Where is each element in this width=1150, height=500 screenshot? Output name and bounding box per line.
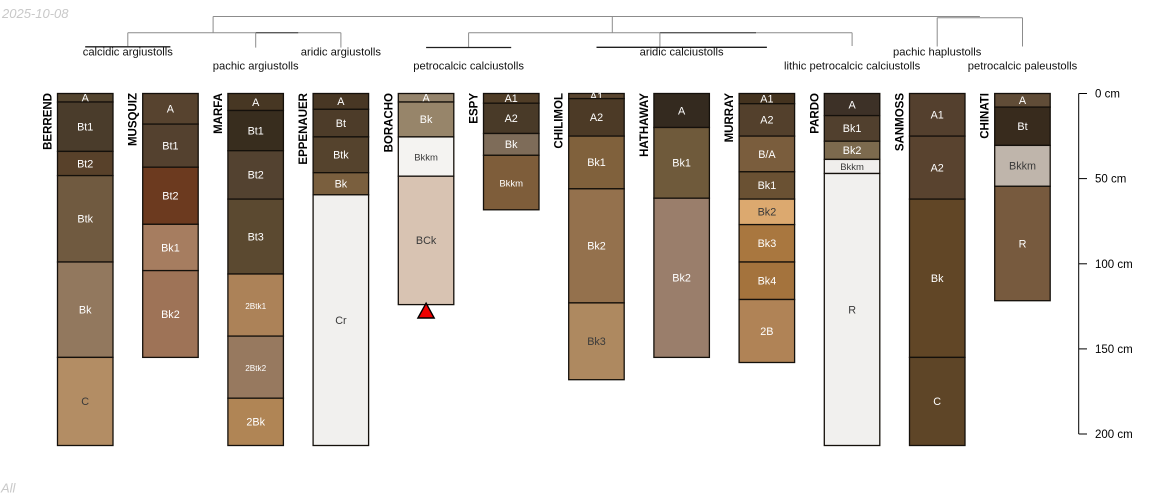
svg-text:A: A [1019,95,1027,107]
svg-text:PARDO: PARDO [809,93,821,134]
svg-text:Bk: Bk [420,114,433,126]
svg-text:Bt: Bt [1017,121,1027,133]
svg-text:Bk1: Bk1 [843,123,862,135]
svg-text:Bt2: Bt2 [77,158,93,170]
svg-text:Bkkm: Bkkm [840,162,864,173]
svg-text:2B: 2B [760,326,773,338]
svg-text:A: A [252,97,260,109]
svg-text:BORACHO: BORACHO [383,93,395,152]
svg-text:ESPY: ESPY [469,93,481,124]
svg-text:2Btk2: 2Btk2 [245,364,266,373]
svg-text:A2: A2 [760,115,773,127]
svg-text:CHINATI: CHINATI [980,93,992,139]
svg-text:A: A [167,104,175,116]
svg-text:Bt2: Bt2 [248,170,264,182]
svg-text:MUSQUIZ: MUSQUIZ [128,93,140,146]
svg-text:A2: A2 [931,162,944,174]
svg-text:aridic argiustolls: aridic argiustolls [301,47,382,59]
svg-text:aridic calciustolls: aridic calciustolls [640,47,724,59]
svg-text:C: C [933,396,941,408]
svg-text:B/A: B/A [758,149,776,161]
svg-text:Bk: Bk [931,273,944,285]
svg-text:Bt1: Bt1 [162,140,178,152]
svg-text:Bk1: Bk1 [587,157,606,169]
svg-text:Bt2: Bt2 [162,191,178,203]
svg-text:C: C [81,396,89,408]
svg-text:Bt: Bt [336,118,346,130]
svg-text:Bk: Bk [335,179,348,191]
svg-text:R: R [1019,238,1027,250]
svg-text:lithic petrocalcic calciustoll: lithic petrocalcic calciustolls [784,60,921,72]
svg-text:Bk2: Bk2 [758,207,777,219]
svg-text:Btk: Btk [77,214,93,226]
svg-text:BCk: BCk [416,235,437,247]
svg-text:All: All [0,481,17,496]
svg-text:Bk1: Bk1 [758,180,777,192]
svg-text:MARFA: MARFA [213,93,225,134]
svg-text:R: R [848,304,856,316]
svg-text:A2: A2 [590,112,603,124]
svg-text:Bk2: Bk2 [161,309,180,321]
svg-text:petrocalcic paleustolls: petrocalcic paleustolls [968,60,1078,72]
svg-text:Btk: Btk [333,150,349,162]
svg-text:Bk2: Bk2 [843,145,862,157]
svg-text:A: A [337,96,345,108]
svg-text:A: A [678,105,686,117]
svg-text:CHILIMOL: CHILIMOL [554,93,566,149]
svg-text:Bt3: Bt3 [248,231,264,243]
svg-text:100 cm: 100 cm [1095,259,1133,271]
svg-text:2Btk1: 2Btk1 [245,302,266,311]
svg-text:Bk2: Bk2 [587,241,606,253]
svg-text:Bk: Bk [79,305,92,317]
svg-text:2Bk: 2Bk [246,417,265,429]
svg-text:Bk1: Bk1 [161,242,180,254]
svg-text:Bk1: Bk1 [672,158,691,170]
svg-text:2025-10-08: 2025-10-08 [1,6,69,21]
svg-text:pachic haplustolls: pachic haplustolls [893,47,982,59]
svg-text:Bk2: Bk2 [672,273,691,285]
svg-text:EPPENAUER: EPPENAUER [298,92,310,164]
svg-text:A: A [848,99,856,111]
svg-text:Bk: Bk [505,139,518,151]
svg-text:BERREND: BERREND [43,93,55,150]
svg-text:Bkkm: Bkkm [414,152,438,163]
svg-text:HATHAWAY: HATHAWAY [639,93,651,157]
svg-text:0 cm: 0 cm [1095,89,1120,101]
svg-text:A2: A2 [505,113,518,125]
svg-text:Bk4: Bk4 [758,276,777,288]
svg-text:Bk3: Bk3 [587,336,606,348]
svg-text:Bkkm: Bkkm [1009,161,1036,173]
svg-text:Bkkm: Bkkm [499,178,523,189]
svg-text:Bt1: Bt1 [248,125,264,137]
svg-text:Bt1: Bt1 [77,122,93,134]
svg-text:A1: A1 [931,110,944,122]
svg-text:SANMOSS: SANMOSS [895,93,907,151]
svg-text:Bk3: Bk3 [758,238,777,250]
svg-text:calcidic argiustolls: calcidic argiustolls [83,47,174,59]
svg-text:50 cm: 50 cm [1095,174,1126,186]
svg-text:Cr: Cr [335,315,347,327]
svg-text:200 cm: 200 cm [1095,429,1133,441]
svg-text:MURRAY: MURRAY [724,93,736,143]
svg-text:150 cm: 150 cm [1095,344,1133,356]
svg-text:pachic argiustolls: pachic argiustolls [213,60,299,72]
svg-text:petrocalcic calciustolls: petrocalcic calciustolls [413,60,524,72]
